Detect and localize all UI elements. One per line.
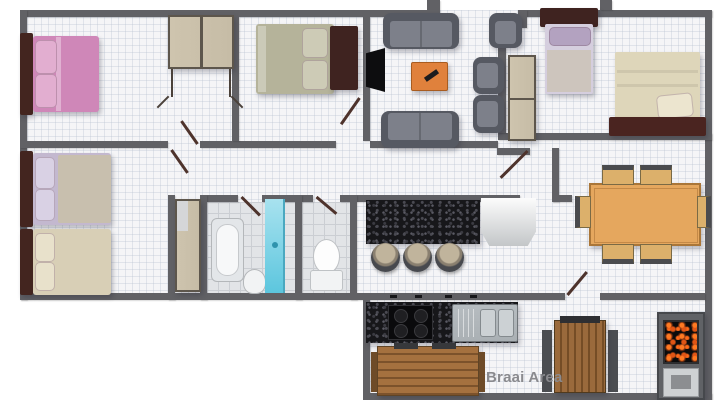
bed4b-pillow-top [35, 233, 55, 262]
wood-bench-bracket-1 [394, 343, 418, 349]
double-sink [452, 304, 518, 342]
bathtub [211, 218, 244, 282]
bed4a-duvet [58, 155, 111, 223]
bed1-pillow-top [35, 40, 57, 74]
dining-chair-right [697, 196, 711, 228]
toilet-tank [310, 270, 343, 291]
bed4b-pillow-bottom [35, 262, 55, 291]
dining-chair-top-2 [640, 165, 672, 185]
bed1-headboard [20, 33, 33, 115]
cupboard-handle-2 [415, 295, 422, 298]
dining-table [589, 183, 701, 246]
bed2-fold [258, 26, 266, 92]
sofa-top-cushion-line [420, 21, 422, 47]
bed1-pillow-bottom [35, 74, 57, 108]
cabinet-bedroom3-divider [510, 98, 534, 100]
bed4a-pillow-top [35, 157, 55, 189]
sofa-top [383, 13, 459, 49]
bed3-double-fold1 [617, 70, 698, 73]
tv [366, 48, 385, 92]
wood-bench-rail-right [479, 352, 485, 392]
wardrobe-bedroom1-divider [200, 17, 203, 67]
braai-lower-shelf-mark [671, 375, 691, 389]
remote-control [424, 69, 439, 82]
bed2-double-sage [256, 24, 334, 94]
armchair-top [489, 13, 522, 48]
stove [388, 305, 433, 340]
bed3-double-pillow [656, 92, 694, 120]
floor-plan: Braai Area [0, 0, 720, 400]
stove-burner-1 [394, 309, 408, 323]
dining-chair-left [575, 196, 591, 228]
kitchen-bar-counter [366, 200, 480, 244]
braai-firebox [663, 320, 699, 364]
basin [243, 269, 266, 294]
armchair-top-seat [495, 21, 516, 44]
cupboard-handle-1 [390, 295, 397, 298]
wall-toilet-kitchen [350, 195, 357, 300]
sink-drainboard-line-1 [458, 309, 459, 337]
bed4a-pillow-bottom [35, 189, 55, 221]
wall-bottom-right [600, 293, 705, 300]
bed4a-headboard [20, 151, 33, 227]
bar-stool-2 [403, 243, 432, 272]
stove-burner-2 [414, 309, 428, 323]
cupboard-handle-4 [470, 295, 477, 298]
shower-drain [272, 242, 278, 248]
bed4a-single-lavender [33, 153, 111, 225]
dining-table-inner-line [594, 188, 698, 243]
bathtub-inner [216, 224, 239, 276]
wall-bath-left [200, 195, 207, 300]
stove-burner-3 [394, 324, 408, 338]
bed3-single-pillow [549, 27, 591, 46]
braai-area-label: Braai Area [486, 369, 582, 389]
toilet-bowl [313, 239, 340, 274]
wall-kitchen-dining [552, 148, 559, 202]
wall-bed1-bottom [20, 141, 168, 148]
bed2-pillow-top [302, 28, 328, 58]
bed3-single [545, 24, 593, 94]
bed3-double-fold2 [617, 84, 698, 87]
braai-lower-shelf [663, 368, 699, 397]
wardrobe-corridor-top-shelf [177, 201, 188, 231]
wardrobe-door-left [171, 69, 173, 97]
bar-stool-1 [371, 243, 400, 272]
wardrobe-door-right [229, 69, 231, 97]
sink-basin-1 [480, 309, 496, 337]
sink-basin-2 [498, 309, 514, 337]
bed3-single-duvet [547, 50, 591, 92]
wood-bench-bracket-2 [432, 343, 456, 349]
armchair-right-2 [473, 95, 504, 133]
armchair-right-1-seat [477, 63, 498, 88]
wood-bench-rail-left [371, 352, 377, 392]
wall-hall-bottom-d [552, 195, 572, 202]
bed3-double-cream [615, 52, 700, 122]
sink-drainboard-line-4 [473, 309, 474, 337]
bed2-pillow-bottom [302, 60, 328, 90]
armchair-right-1 [473, 57, 504, 94]
shower [265, 199, 285, 293]
dining-chair-top-1 [602, 165, 634, 185]
picnic-bench-right [608, 330, 618, 392]
coffee-table [411, 62, 448, 91]
dining-chair-bottom-2 [640, 244, 672, 264]
wall-bed4-right [168, 195, 175, 300]
picnic-table-end-bar [560, 316, 600, 323]
bed4b-headboard [20, 229, 33, 295]
bed2-headboard [330, 26, 358, 90]
bar-stool-3 [435, 243, 464, 272]
dining-chair-bottom-1 [602, 244, 634, 264]
wall-bed2-bottom [200, 141, 336, 148]
cupboard-handle-3 [445, 295, 452, 298]
bed3-double-headboard [609, 117, 706, 136]
wardrobe-bedroom1 [168, 15, 234, 69]
wall-bath-toilet [295, 195, 302, 300]
armchair-right-2-seat [477, 101, 498, 127]
bed4b-single-cream [33, 229, 111, 295]
wood-bench [377, 346, 479, 396]
fridge [481, 198, 536, 246]
stove-burner-4 [414, 324, 428, 338]
bed1-double-pink [33, 36, 99, 112]
sink-drainboard-line-3 [468, 309, 469, 337]
wardrobe-corridor [175, 199, 201, 292]
sofa-bottom-cushion-line [419, 113, 421, 140]
cabinet-bedroom3 [508, 55, 536, 141]
braai-grill-frame [657, 312, 705, 400]
sink-drainboard-line-2 [463, 309, 464, 337]
sofa-bottom [381, 111, 459, 148]
wall-top-stub-b [600, 0, 612, 10]
